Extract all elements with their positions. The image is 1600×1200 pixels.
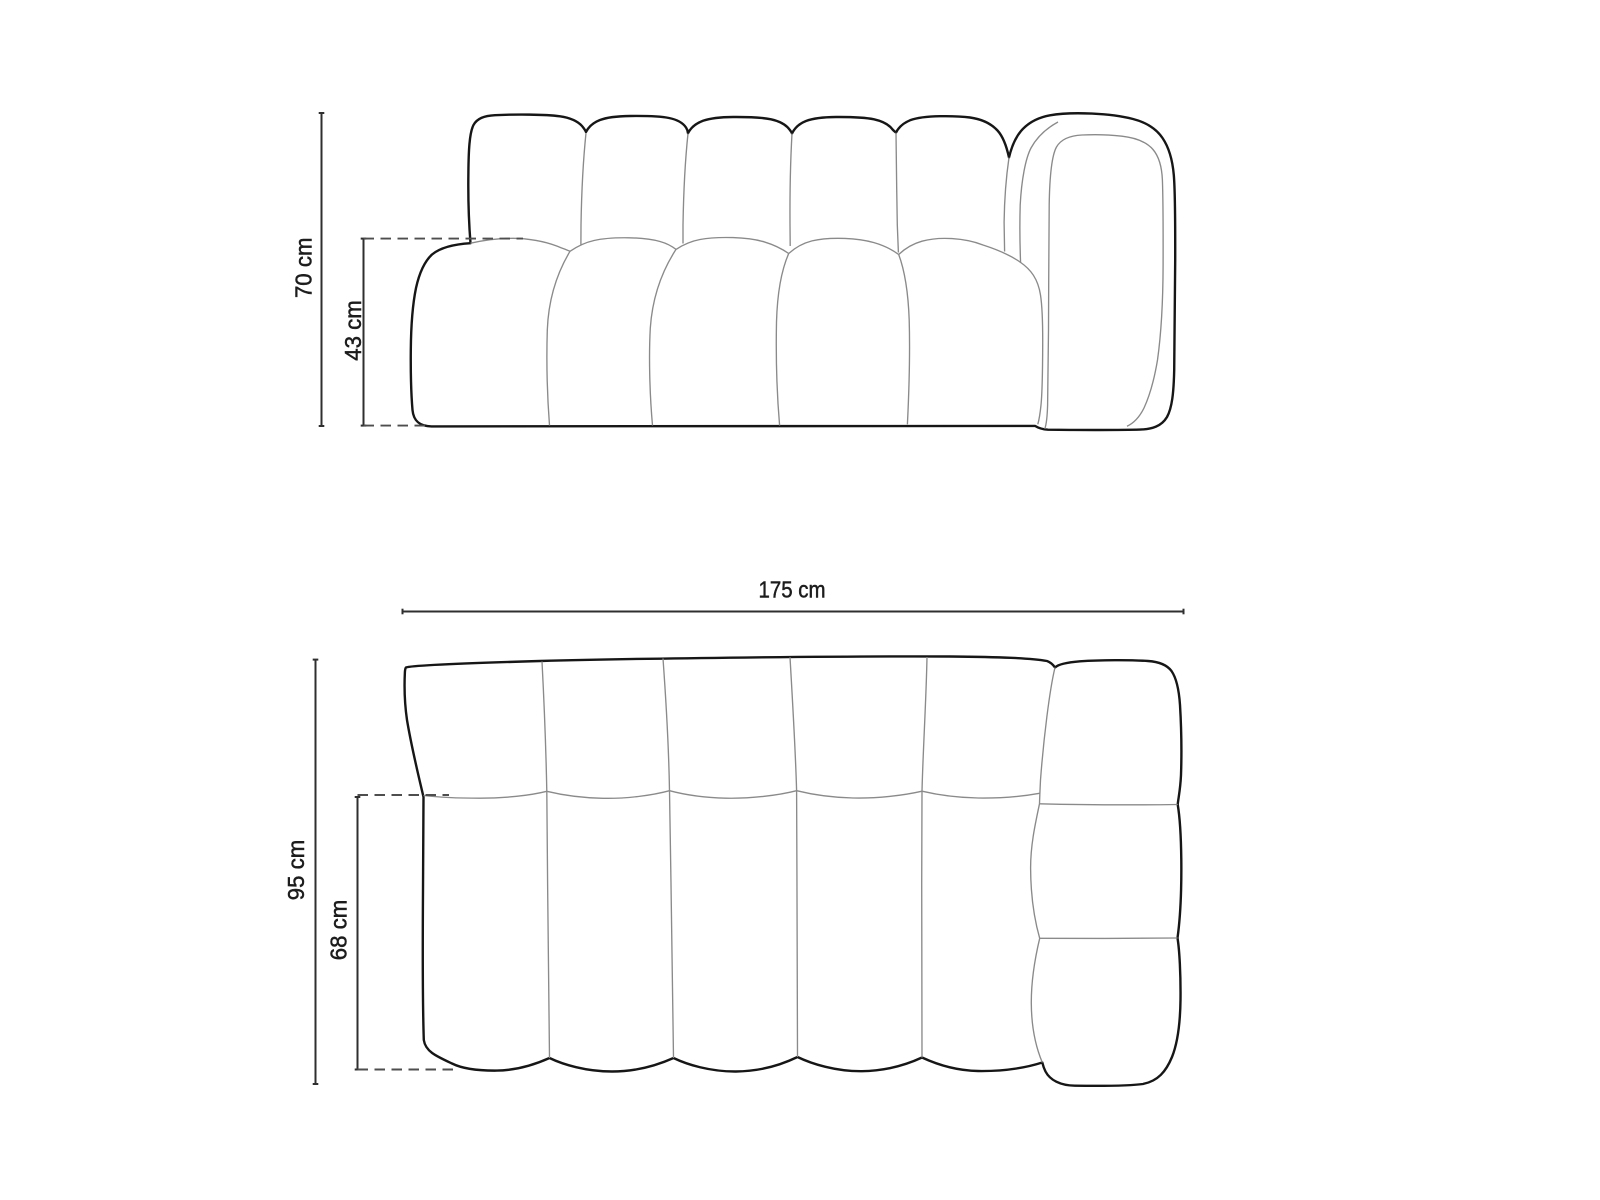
svg-text:175 cm: 175 cm xyxy=(759,577,826,603)
svg-text:68 cm: 68 cm xyxy=(326,900,352,961)
svg-text:70 cm: 70 cm xyxy=(291,238,317,299)
svg-text:43 cm: 43 cm xyxy=(340,300,366,361)
svg-text:95 cm: 95 cm xyxy=(283,840,309,901)
